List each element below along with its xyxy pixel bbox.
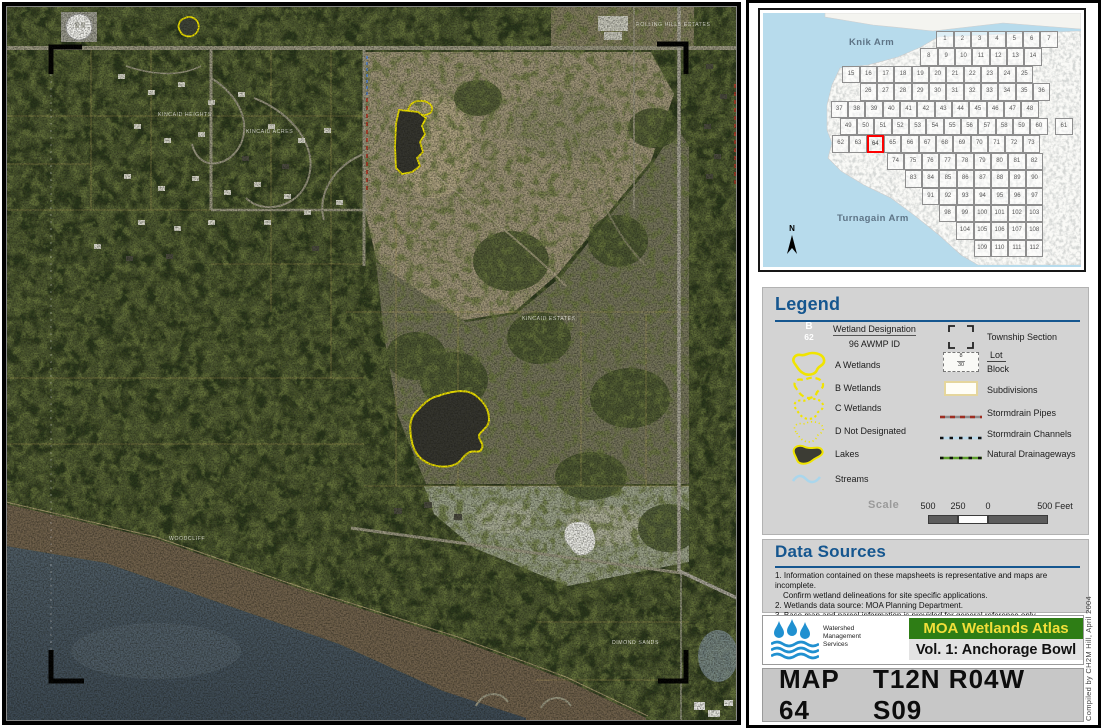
- index-cell-104[interactable]: 104: [956, 222, 973, 239]
- index-cell-76[interactable]: 76: [922, 153, 939, 170]
- atlas-subtitle: Vol. 1: Anchorage Bowl: [909, 639, 1083, 660]
- index-cell-22[interactable]: 22: [964, 66, 981, 83]
- subdivisions-label: Subdivisions: [987, 385, 1038, 395]
- index-cell-103[interactable]: 103: [1026, 205, 1043, 222]
- lot-block-icon: 8 30: [937, 352, 985, 372]
- index-cell-48[interactable]: 48: [1021, 101, 1038, 118]
- index-cell-49[interactable]: 49: [840, 118, 857, 135]
- index-cell-108[interactable]: 108: [1026, 222, 1043, 239]
- wetland-designation-symbol: B 62: [793, 322, 825, 341]
- index-cell-57[interactable]: 57: [978, 118, 995, 135]
- index-cell-73[interactable]: 73: [1023, 135, 1040, 152]
- index-cell-39[interactable]: 39: [865, 101, 882, 118]
- scale-label: Scale: [868, 499, 899, 511]
- index-cell-70[interactable]: 70: [971, 135, 988, 152]
- index-cell-15[interactable]: 15: [842, 66, 859, 83]
- index-cell-51[interactable]: 51: [874, 118, 891, 135]
- index-cell-33[interactable]: 33: [981, 83, 998, 100]
- aerial-map-sheet: ROLLING HILLS ESTATESKINCAID HEIGHTSKINC…: [2, 2, 741, 725]
- index-cell-23[interactable]: 23: [981, 66, 998, 83]
- index-cell-112[interactable]: 112: [1026, 240, 1043, 257]
- index-cell-106[interactable]: 106: [991, 222, 1008, 239]
- index-cell-67[interactable]: 67: [919, 135, 936, 152]
- streams-label: Streams: [835, 474, 869, 484]
- turnagain-arm-label: Turnagain Arm: [837, 213, 909, 224]
- stormdrain-channels-icon: [937, 429, 985, 447]
- index-cell-35[interactable]: 35: [1016, 83, 1033, 100]
- index-cell-79[interactable]: 79: [974, 153, 991, 170]
- index-cell-18[interactable]: 18: [894, 66, 911, 83]
- note-line: Confirm wetland delineations for site sp…: [775, 591, 1082, 601]
- north-label: N: [782, 225, 802, 233]
- atlas-page: ROLLING HILLS ESTATESKINCAID HEIGHTSKINC…: [0, 0, 1103, 728]
- index-map-water: Knik Arm Turnagain Arm N 123456789101112…: [763, 13, 1081, 267]
- atlas-title: MOA Wetlands Atlas: [909, 618, 1083, 639]
- index-cell-9[interactable]: 9: [938, 48, 955, 65]
- index-cell-2[interactable]: 2: [954, 31, 971, 48]
- index-cell-64[interactable]: 64: [867, 135, 884, 152]
- watershed-logo-icon: [771, 619, 819, 661]
- index-cell-50[interactable]: 50: [857, 118, 874, 135]
- index-cell-42[interactable]: 42: [917, 101, 934, 118]
- index-cell-62[interactable]: 62: [832, 135, 849, 152]
- note-line: 1. Information contained on these mapshe…: [775, 571, 1082, 591]
- scale-tick-0: 0: [974, 501, 1002, 511]
- index-cell-105[interactable]: 105: [974, 222, 991, 239]
- index-cell-75[interactable]: 75: [904, 153, 921, 170]
- index-cell-107[interactable]: 107: [1008, 222, 1025, 239]
- index-cell-81[interactable]: 81: [1008, 153, 1025, 170]
- index-cell-63[interactable]: 63: [849, 135, 866, 152]
- index-cell-26[interactable]: 26: [860, 83, 877, 100]
- index-cell-20[interactable]: 20: [929, 66, 946, 83]
- index-cell-46[interactable]: 46: [987, 101, 1004, 118]
- index-cell-17[interactable]: 17: [877, 66, 894, 83]
- index-cell-91[interactable]: 91: [922, 188, 939, 205]
- township-range-section: T12N R04W S09: [873, 664, 1071, 726]
- index-cell-37[interactable]: 37: [831, 101, 848, 118]
- index-cell-83[interactable]: 83: [905, 170, 922, 187]
- legend-title: Legend: [775, 294, 840, 315]
- subdivisions-icon: [937, 381, 985, 401]
- index-cell-110[interactable]: 110: [991, 240, 1008, 257]
- title-strip: Watershed Management Services MOA Wetlan…: [762, 615, 1084, 665]
- index-cell-78[interactable]: 78: [956, 153, 973, 170]
- index-cell-100[interactable]: 100: [974, 205, 991, 222]
- index-cell-12[interactable]: 12: [990, 48, 1007, 65]
- data-sources-title: Data Sources: [775, 542, 886, 562]
- index-cell-71[interactable]: 71: [988, 135, 1005, 152]
- index-cell-68[interactable]: 68: [936, 135, 953, 152]
- index-cell-72[interactable]: 72: [1005, 135, 1022, 152]
- scale-tick-500: 500: [914, 501, 942, 511]
- data-sources: Data Sources 1. Information contained on…: [762, 539, 1089, 613]
- streams-icon: [789, 469, 829, 494]
- index-cell-13[interactable]: 13: [1007, 48, 1024, 65]
- index-cell-94[interactable]: 94: [974, 188, 991, 205]
- index-cell-99[interactable]: 99: [956, 205, 973, 222]
- index-cell-36[interactable]: 36: [1033, 83, 1050, 100]
- north-arrow: N: [782, 225, 802, 260]
- d-not-designated-label: D Not Designated: [835, 426, 906, 436]
- aerial-photo: ROLLING HILLS ESTATESKINCAID HEIGHTSKINC…: [6, 6, 737, 721]
- index-cell-5[interactable]: 5: [1006, 31, 1023, 48]
- index-cell-59[interactable]: 59: [1013, 118, 1030, 135]
- index-cell-52[interactable]: 52: [892, 118, 909, 135]
- index-cell-60[interactable]: 60: [1030, 118, 1047, 135]
- index-cell-28[interactable]: 28: [894, 83, 911, 100]
- index-cell-98[interactable]: 98: [939, 205, 956, 222]
- index-cell-31[interactable]: 31: [946, 83, 963, 100]
- index-cell-10[interactable]: 10: [955, 48, 972, 65]
- township-section-label: Township Section: [987, 332, 1057, 342]
- index-cell-30[interactable]: 30: [929, 83, 946, 100]
- index-cell-89[interactable]: 89: [1009, 170, 1026, 187]
- index-cell-92[interactable]: 92: [939, 188, 956, 205]
- index-cell-93[interactable]: 93: [957, 188, 974, 205]
- index-cell-97[interactable]: 97: [1026, 188, 1043, 205]
- index-cell-14[interactable]: 14: [1024, 48, 1041, 65]
- lakes-label: Lakes: [835, 449, 859, 459]
- index-cell-101[interactable]: 101: [991, 205, 1008, 222]
- legend: Legend B 62 Wetland Designation 96 AWMP …: [762, 287, 1089, 535]
- data-sources-rule: [775, 566, 1080, 568]
- index-cell-77[interactable]: 77: [939, 153, 956, 170]
- index-cell-66[interactable]: 66: [901, 135, 918, 152]
- index-cell-85[interactable]: 85: [939, 170, 956, 187]
- index-cell-27[interactable]: 27: [877, 83, 894, 100]
- c-wetlands-label: C Wetlands: [835, 403, 881, 413]
- index-cell-53[interactable]: 53: [909, 118, 926, 135]
- index-cell-109[interactable]: 109: [974, 240, 991, 257]
- a-wetlands-label: A Wetlands: [835, 360, 880, 370]
- index-cell-32[interactable]: 32: [964, 83, 981, 100]
- side-panel: Knik Arm Turnagain Arm N 123456789101112…: [746, 0, 1101, 728]
- stormdrain-channels-label: Stormdrain Channels: [987, 429, 1072, 439]
- stormdrain-pipes-label: Stormdrain Pipes: [987, 408, 1056, 418]
- index-cell-24[interactable]: 24: [998, 66, 1015, 83]
- scale-right-label: 500 Feet: [1025, 501, 1085, 511]
- note-line: 2. Wetlands data source: MOA Planning De…: [775, 601, 1082, 611]
- index-cell-61[interactable]: 61: [1055, 118, 1072, 135]
- index-cell-19[interactable]: 19: [912, 66, 929, 83]
- index-cell-111[interactable]: 111: [1008, 240, 1025, 257]
- index-cell-87[interactable]: 87: [974, 170, 991, 187]
- north-arrow-icon: [784, 233, 800, 255]
- index-cell-80[interactable]: 80: [991, 153, 1008, 170]
- township-section-icon: [937, 324, 985, 355]
- b-wetlands-label: B Wetlands: [835, 383, 881, 393]
- index-cell-88[interactable]: 88: [991, 170, 1008, 187]
- index-cell-29[interactable]: 29: [912, 83, 929, 100]
- index-cell-56[interactable]: 56: [961, 118, 978, 135]
- index-cell-21[interactable]: 21: [946, 66, 963, 83]
- index-cell-65[interactable]: 65: [884, 135, 901, 152]
- natural-drainageways-icon: [937, 449, 985, 467]
- index-cell-4[interactable]: 4: [988, 31, 1005, 48]
- index-cell-86[interactable]: 86: [957, 170, 974, 187]
- index-cell-69[interactable]: 69: [953, 135, 970, 152]
- scale-bar: [928, 515, 1048, 524]
- index-cell-95[interactable]: 95: [991, 188, 1008, 205]
- index-cell-16[interactable]: 16: [860, 66, 877, 83]
- stormdrain-pipes-icon: [937, 408, 985, 426]
- compiled-by-note: Compiled by CH2M Hill, April 2004: [1084, 596, 1093, 721]
- index-map: Knik Arm Turnagain Arm N 123456789101112…: [758, 8, 1086, 272]
- index-cell-96[interactable]: 96: [1009, 188, 1026, 205]
- index-cell-8[interactable]: 8: [920, 48, 937, 65]
- index-cell-84[interactable]: 84: [922, 170, 939, 187]
- index-cell-6[interactable]: 6: [1023, 31, 1040, 48]
- watershed-logo-text: Watershed Management Services: [823, 625, 861, 649]
- wetland-designation-label: Wetland Designation 96 AWMP ID: [833, 324, 916, 349]
- index-cell-40[interactable]: 40: [883, 101, 900, 118]
- map-number: MAP 64: [779, 664, 873, 726]
- index-cell-11[interactable]: 11: [972, 48, 989, 65]
- index-cell-54[interactable]: 54: [926, 118, 943, 135]
- index-cell-90[interactable]: 90: [1026, 170, 1043, 187]
- index-cell-44[interactable]: 44: [952, 101, 969, 118]
- index-cell-43[interactable]: 43: [935, 101, 952, 118]
- index-cell-102[interactable]: 102: [1008, 205, 1025, 222]
- index-cell-74[interactable]: 74: [887, 153, 904, 170]
- index-cell-41[interactable]: 41: [900, 101, 917, 118]
- index-cell-47[interactable]: 47: [1004, 101, 1021, 118]
- index-cell-45[interactable]: 45: [969, 101, 986, 118]
- index-cell-82[interactable]: 82: [1026, 153, 1043, 170]
- scale-tick-250: 250: [944, 501, 972, 511]
- index-cell-25[interactable]: 25: [1016, 66, 1033, 83]
- map-number-strip: MAP 64 T12N R04W S09: [762, 668, 1084, 722]
- index-cell-38[interactable]: 38: [848, 101, 865, 118]
- index-cell-55[interactable]: 55: [944, 118, 961, 135]
- natural-drainageways-label: Natural Drainageways: [987, 449, 1076, 459]
- knik-arm-label: Knik Arm: [849, 37, 894, 48]
- lot-block-label: Lot Block: [987, 350, 1009, 374]
- index-cell-3[interactable]: 3: [971, 31, 988, 48]
- index-cell-1[interactable]: 1: [936, 31, 953, 48]
- index-cell-58[interactable]: 58: [996, 118, 1013, 135]
- index-cell-34[interactable]: 34: [998, 83, 1015, 100]
- index-cell-7[interactable]: 7: [1040, 31, 1057, 48]
